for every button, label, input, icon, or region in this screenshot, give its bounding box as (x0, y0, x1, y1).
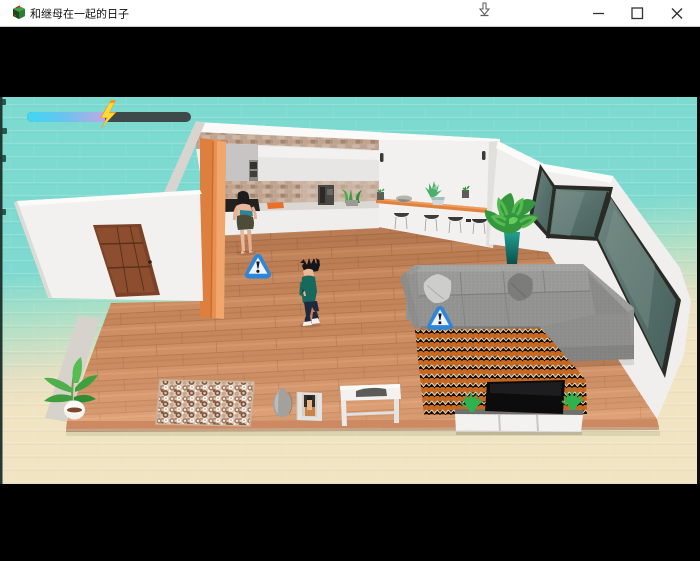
svg-text:和继母在一起的日子: 和继母在一起的日子 (30, 7, 129, 21)
